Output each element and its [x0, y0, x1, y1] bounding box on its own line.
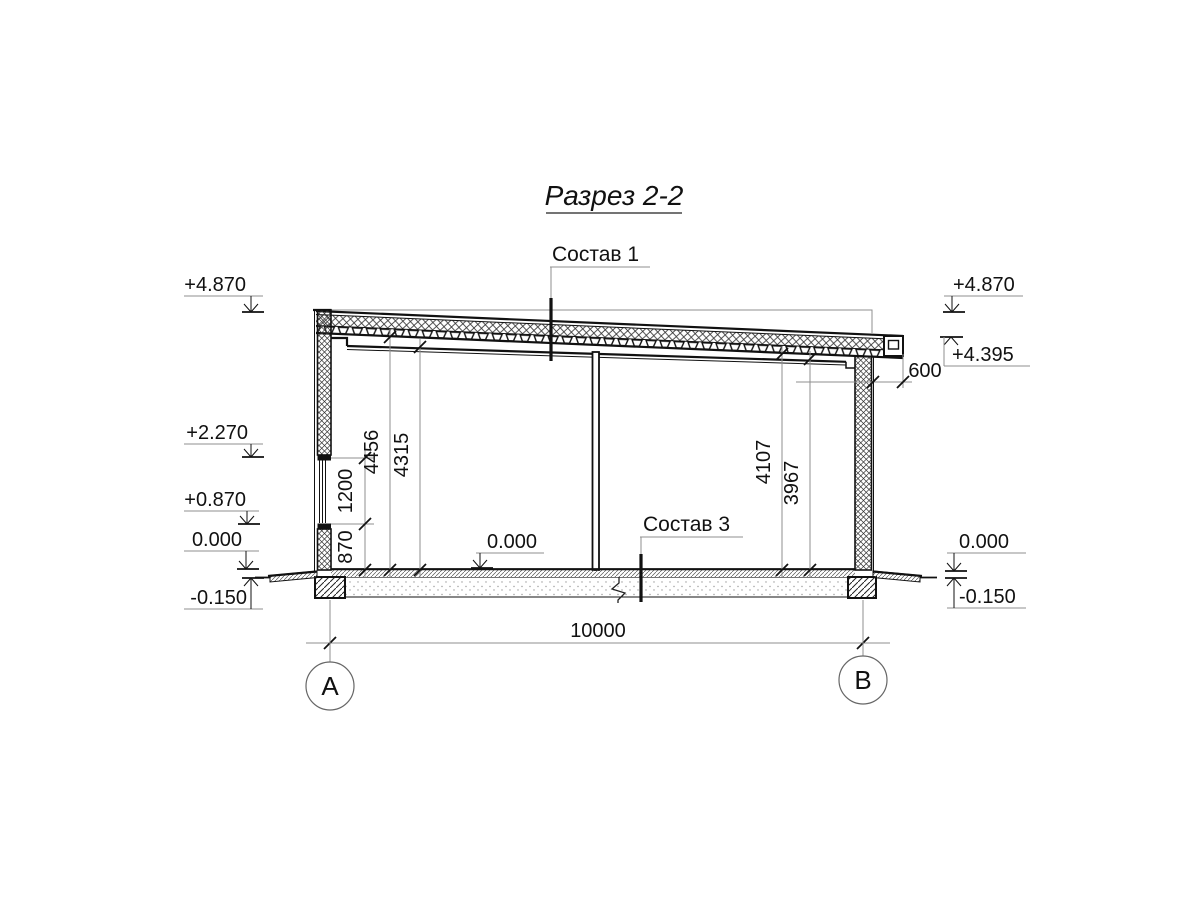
dim-overhang: 600	[908, 360, 941, 382]
dim-right-to-deck: 4107	[753, 440, 775, 485]
foundation-left	[315, 577, 345, 598]
lvl-right-low-text: +4.395	[952, 344, 1014, 366]
lvl-left-sill-text: +0.870	[184, 489, 246, 511]
lvl-left-wtop-text: +2.270	[186, 422, 248, 444]
drawing-sheet: Разрез 2-2	[0, 0, 1200, 900]
mark-left-floor: 0.000	[184, 529, 259, 569]
left-wall-lower	[318, 529, 332, 570]
drawing-title: Разрез 2-2	[545, 180, 684, 213]
section-drawing: Разрез 2-2	[0, 0, 1200, 900]
window-sill-cap	[318, 524, 332, 530]
callout-floor-label: Состав 3	[643, 513, 730, 536]
dim-left-to-deck: 4456	[361, 430, 383, 475]
elevation-marks-right: +4.870 +4.395 0.000 -0.150	[940, 274, 1030, 608]
elevation-marks-left: +4.870 +2.270 +0.870 0.000	[184, 274, 264, 609]
mark-left-window-sill: +0.870	[184, 489, 260, 524]
floor-slab	[331, 569, 855, 603]
lvl-right-high-text: +4.870	[953, 274, 1015, 296]
right-wall	[855, 357, 874, 574]
lvl-left-floor-text: 0.000	[192, 529, 242, 551]
mark-left-top: +4.870	[184, 274, 264, 312]
title-text: Разрез 2-2	[545, 180, 684, 211]
span-dimension: 10000	[306, 620, 890, 649]
lvl-left-top-text: +4.870	[184, 274, 246, 296]
right-wall-body	[855, 357, 872, 571]
mark-right-grade: -0.150	[945, 578, 1026, 608]
mark-right-roof-low: +4.395	[940, 337, 1030, 366]
dim-right-to-ceiling: 3967	[781, 461, 803, 506]
window-head-cap	[318, 455, 332, 461]
ceiling-left-step	[331, 338, 347, 346]
mark-left-window-top: +2.270	[184, 422, 264, 457]
grid-axes: А В	[306, 600, 887, 710]
lvl-interior-floor-text: 0.000	[487, 531, 537, 553]
dim-window-height: 1200	[335, 469, 357, 514]
left-wall-upper	[318, 310, 332, 455]
roof-fascia-inner	[889, 341, 899, 350]
mark-left-grade: -0.150	[184, 578, 264, 609]
callout-roof-label: Состав 1	[552, 243, 639, 266]
center-column	[593, 352, 600, 570]
dim-sill-height: 870	[335, 530, 357, 563]
foundation-right	[848, 577, 876, 598]
mark-right-floor: 0.000	[945, 531, 1026, 571]
lvl-right-grade-text: -0.150	[959, 586, 1016, 608]
ceiling-right-step	[846, 362, 856, 368]
left-wall	[313, 310, 332, 572]
axis-label-a: А	[321, 671, 339, 701]
vertical-dimensions: 870 1200 4456 4315 4107 3967	[331, 329, 816, 577]
axis-label-b: В	[854, 665, 871, 695]
mark-right-roof-high: +4.870	[943, 274, 1023, 312]
dim-span: 10000	[570, 620, 626, 642]
floor-concrete	[345, 580, 847, 597]
mark-interior-floor: 0.000	[471, 531, 544, 568]
window-glazing	[320, 460, 326, 523]
lvl-left-grade-text: -0.150	[190, 587, 247, 609]
dim-left-to-ceiling: 4315	[391, 433, 413, 478]
lvl-right-floor-text: 0.000	[959, 531, 1009, 553]
